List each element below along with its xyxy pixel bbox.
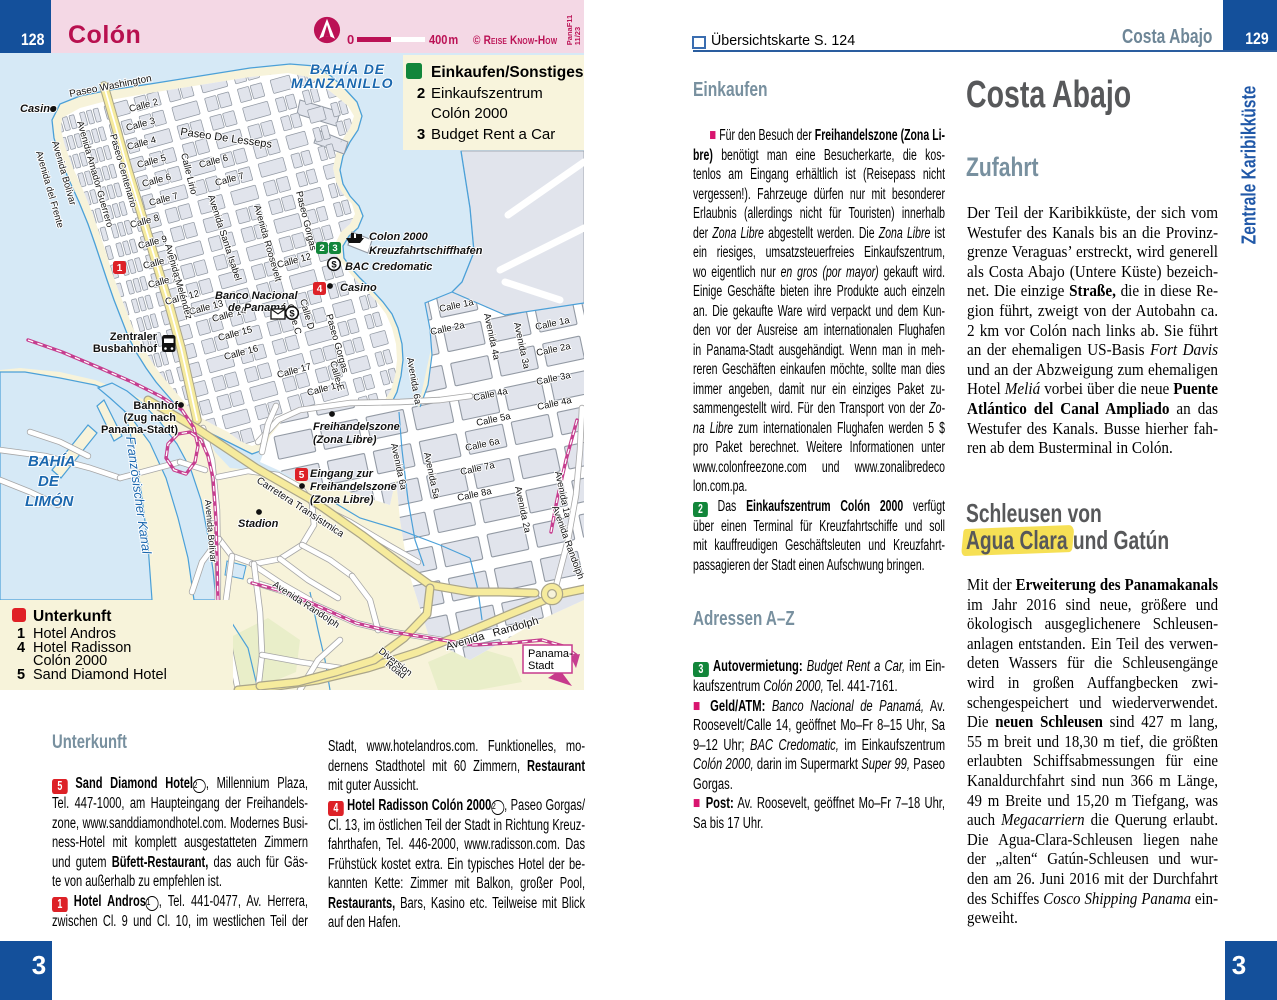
svg-text:(Zug nach: (Zug nach — [123, 412, 176, 424]
svg-text:MANZANILLO: MANZANILLO — [291, 75, 394, 91]
svg-text:Freihandelszone: Freihandelszone — [310, 481, 397, 493]
svg-text:Eingang zur: Eingang zur — [310, 468, 374, 480]
svg-text:Bahnhof: Bahnhof — [133, 400, 178, 412]
svg-text:Unterkunft: Unterkunft — [33, 608, 111, 625]
svg-text:1: 1 — [117, 263, 123, 274]
svg-text:BAC Credomatic: BAC Credomatic — [345, 261, 432, 273]
svg-text:BAHÍA: BAHÍA — [28, 453, 76, 470]
svg-text:LIMÓN: LIMÓN — [25, 492, 74, 510]
svg-text:5: 5 — [17, 667, 25, 683]
svg-text:Stadt: Stadt — [528, 660, 554, 672]
svg-text:Einkaufszentrum: Einkaufszentrum — [431, 85, 543, 102]
svg-text:$: $ — [331, 260, 337, 271]
svg-text:3: 3 — [417, 126, 425, 143]
svg-text:Casino: Casino — [340, 282, 377, 294]
svg-text:Banco Nacional: Banco Nacional — [215, 290, 298, 302]
svg-text:(Zona Libre): (Zona Libre) — [313, 434, 377, 446]
svg-text:Colon 2000: Colon 2000 — [369, 231, 429, 243]
svg-text:4: 4 — [317, 284, 323, 295]
svg-text:2: 2 — [417, 85, 425, 102]
svg-text:Stadion: Stadion — [238, 518, 279, 530]
svg-text:Freihandelszone: Freihandelszone — [313, 421, 400, 433]
svg-text:4: 4 — [17, 640, 25, 656]
svg-text:Kreuzfahrtschiffhafen: Kreuzfahrtschiffhafen — [369, 245, 483, 257]
svg-text:Panama-Stadt): Panama-Stadt) — [101, 424, 178, 436]
svg-text:2: 2 — [319, 243, 324, 254]
svg-text:Busbahnhof: Busbahnhof — [93, 343, 157, 355]
svg-text:Einkaufen/Sonstiges: Einkaufen/Sonstiges — [431, 64, 583, 81]
svg-text:3: 3 — [332, 243, 337, 254]
svg-text:Colón 2000: Colón 2000 — [431, 105, 508, 122]
svg-text:(Zona Libre): (Zona Libre) — [310, 494, 374, 506]
svg-text:Sand Diamond Hotel: Sand Diamond Hotel — [33, 667, 167, 683]
svg-text:Zentraler: Zentraler — [110, 331, 158, 343]
svg-text:$: $ — [289, 309, 295, 320]
svg-text:DE: DE — [38, 473, 60, 490]
svg-text:Budget Rent a Car: Budget Rent a Car — [431, 126, 555, 143]
svg-text:5: 5 — [299, 470, 305, 481]
svg-text:Panama-: Panama- — [528, 648, 573, 660]
